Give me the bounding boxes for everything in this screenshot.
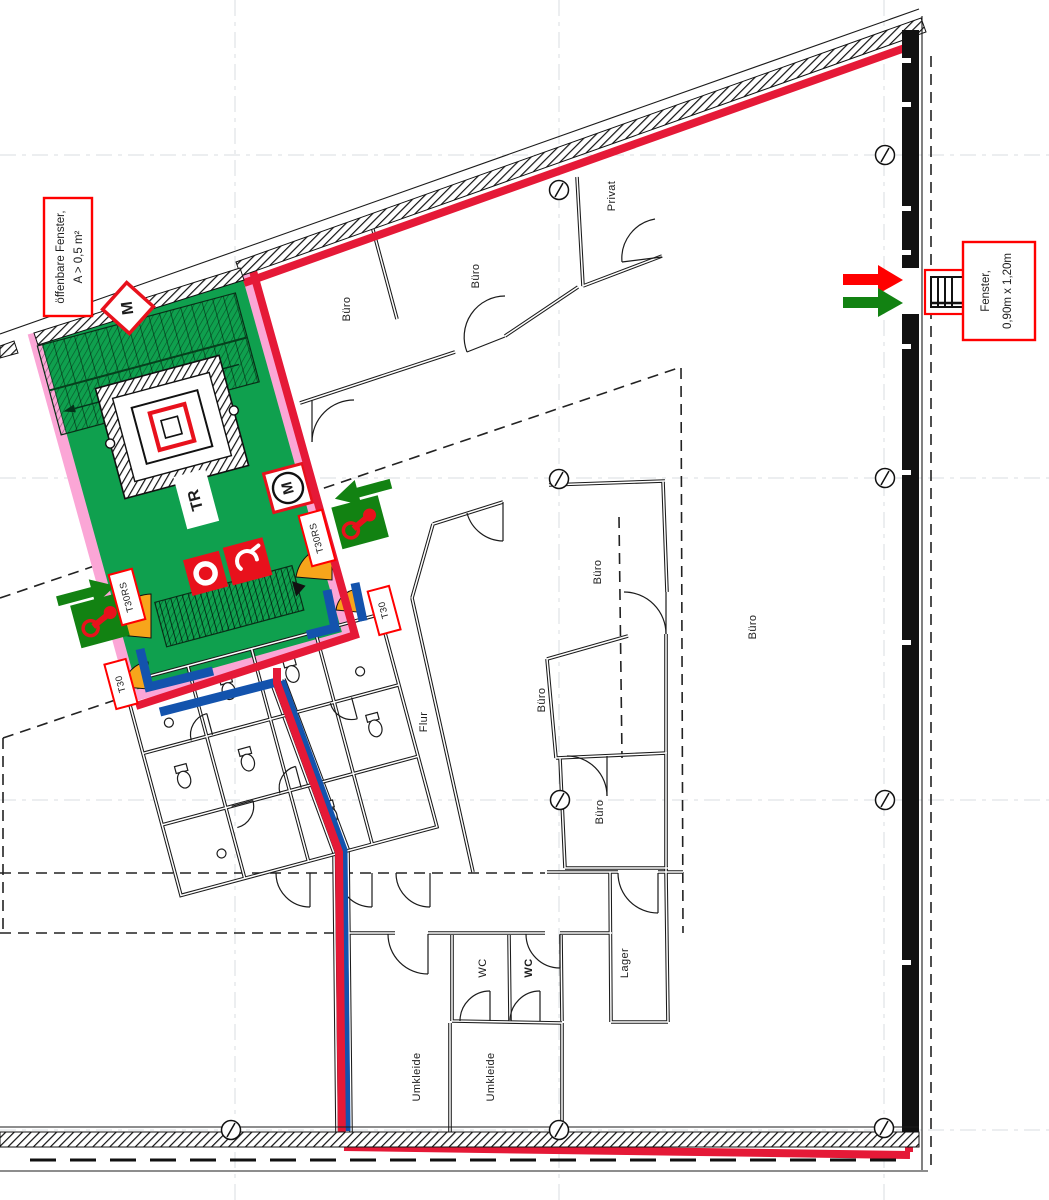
- tag-t30-2: T30: [368, 586, 401, 635]
- bottom-wall: [0, 1132, 919, 1147]
- interior-walls: [272, 177, 683, 1132]
- room-label-flur: Flur: [418, 712, 430, 733]
- annotation-openable-window: öffenbare Fenster, A > 0,5 m²: [44, 198, 92, 316]
- floor-plan-drawing: TR M: [0, 0, 1049, 1200]
- window-escape-arrow-red-icon: [843, 265, 903, 294]
- annotation-window-size: Fenster, 0,90m x 1,20m: [925, 242, 1035, 340]
- room-labels: Büro Büro Privat Büro Büro Büro Büro Flu…: [341, 181, 759, 1102]
- svg-text:A > 0,5 m²: A > 0,5 m²: [73, 230, 85, 283]
- escape-route-bottom: [344, 1147, 910, 1155]
- room-label-buero-1: Büro: [341, 297, 353, 322]
- room-label-lager: Lager: [619, 948, 631, 978]
- room-label-buero-3: Büro: [592, 560, 604, 585]
- svg-text:öffenbare Fenster,: öffenbare Fenster,: [55, 210, 67, 303]
- right-wall: [902, 30, 919, 1146]
- svg-text:M: M: [119, 300, 138, 316]
- room-label-buero-4: Büro: [536, 688, 548, 713]
- room-label-wc-2: WC: [523, 958, 535, 977]
- right-wall-window-gap: [902, 268, 919, 314]
- room-label-umkleide-1: Umkleide: [411, 1052, 423, 1101]
- window-escape-arrow-green-icon: [843, 288, 903, 317]
- svg-text:0,90m x 1,20m: 0,90m x 1,20m: [1002, 253, 1014, 329]
- floor-plan-canvas: TR M: [0, 0, 1049, 1200]
- room-label-buero-5: Büro: [594, 800, 606, 825]
- room-label-umkleide-2: Umkleide: [485, 1052, 497, 1101]
- room-label-privat: Privat: [606, 181, 618, 212]
- door-hardware-icon: [331, 495, 388, 549]
- room-label-wc-1: WC: [477, 958, 489, 977]
- svg-text:Fenster,: Fenster,: [980, 270, 992, 312]
- room-label-buero-main: Büro: [747, 615, 759, 640]
- room-label-buero-2: Büro: [470, 264, 482, 289]
